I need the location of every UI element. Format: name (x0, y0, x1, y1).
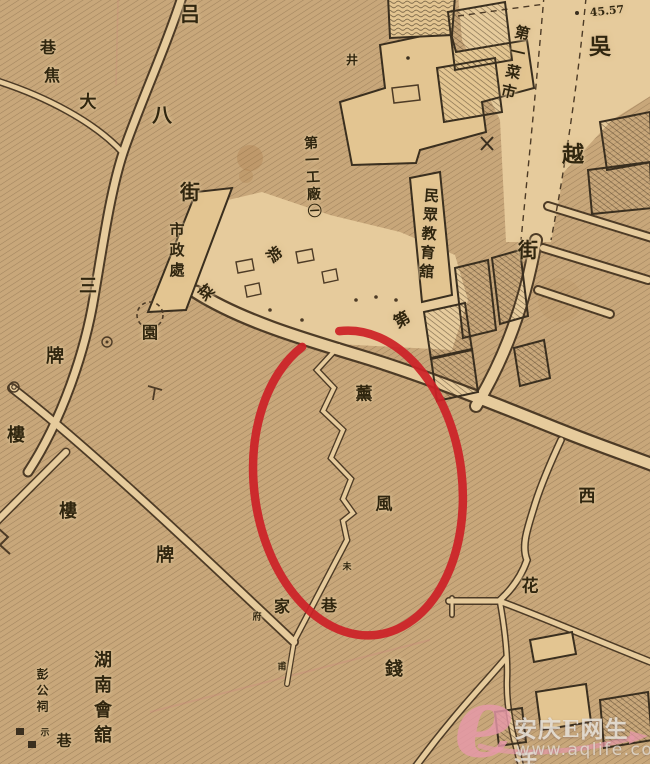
pond-hatch (388, 0, 455, 38)
map-linework (0, 0, 650, 764)
historical-map: 吕 巷 焦 大 八 街 三 牌 樓 樓 牌 市政處 菜 園 游 第一工廠㊀ 第一… (0, 0, 650, 764)
